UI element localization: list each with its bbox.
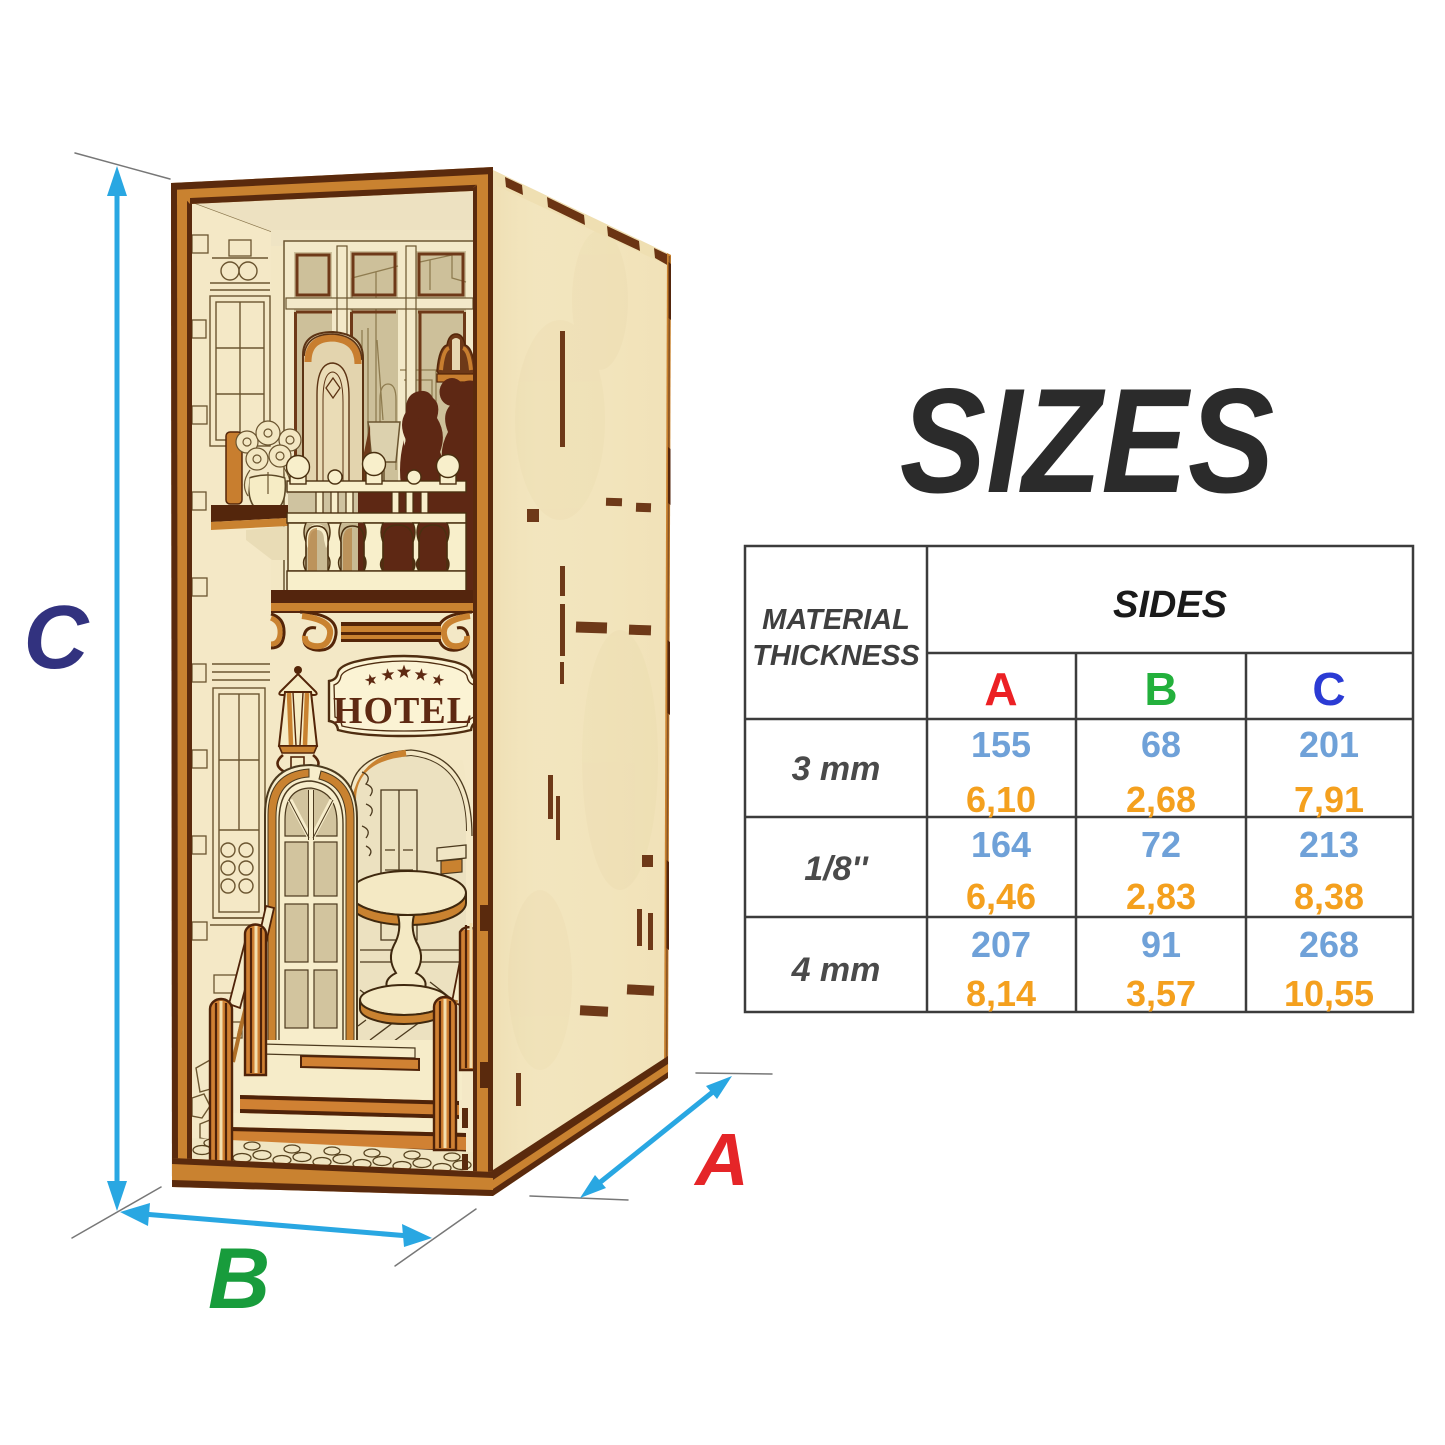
svg-text:SIZES: SIZES — [900, 358, 1275, 524]
svg-text:4 mm: 4 mm — [791, 951, 881, 989]
svg-text:MATERIAL: MATERIAL — [762, 604, 910, 636]
svg-text:B: B — [208, 1231, 270, 1327]
svg-text:8,14: 8,14 — [966, 973, 1036, 1014]
svg-text:6,10: 6,10 — [966, 779, 1036, 820]
svg-text:155: 155 — [971, 724, 1031, 765]
svg-text:3 mm: 3 mm — [792, 750, 881, 788]
svg-text:72: 72 — [1141, 824, 1181, 865]
svg-text:7,91: 7,91 — [1294, 779, 1364, 820]
svg-text:213: 213 — [1299, 824, 1359, 865]
svg-text:A: A — [693, 1118, 748, 1201]
svg-text:201: 201 — [1299, 724, 1359, 765]
svg-text:68: 68 — [1141, 724, 1181, 765]
svg-text:A: A — [984, 663, 1017, 715]
svg-text:91: 91 — [1141, 924, 1181, 965]
svg-text:2,68: 2,68 — [1126, 779, 1196, 820]
svg-text:164: 164 — [971, 824, 1031, 865]
svg-text:C: C — [24, 588, 91, 688]
svg-text:8,38: 8,38 — [1294, 876, 1364, 917]
svg-text:6,46: 6,46 — [966, 876, 1036, 917]
svg-text:207: 207 — [971, 924, 1031, 965]
svg-text:THICKNESS: THICKNESS — [752, 640, 920, 672]
svg-text:C: C — [1312, 663, 1345, 715]
svg-text:268: 268 — [1299, 924, 1359, 965]
svg-text:10,55: 10,55 — [1284, 973, 1374, 1014]
svg-text:HOTEL: HOTEL — [333, 690, 473, 732]
svg-text:2,83: 2,83 — [1126, 876, 1196, 917]
svg-text:3,57: 3,57 — [1126, 973, 1196, 1014]
svg-text:1/8'': 1/8'' — [804, 850, 869, 888]
svg-text:SIDES: SIDES — [1113, 584, 1227, 626]
svg-text:B: B — [1144, 663, 1177, 715]
